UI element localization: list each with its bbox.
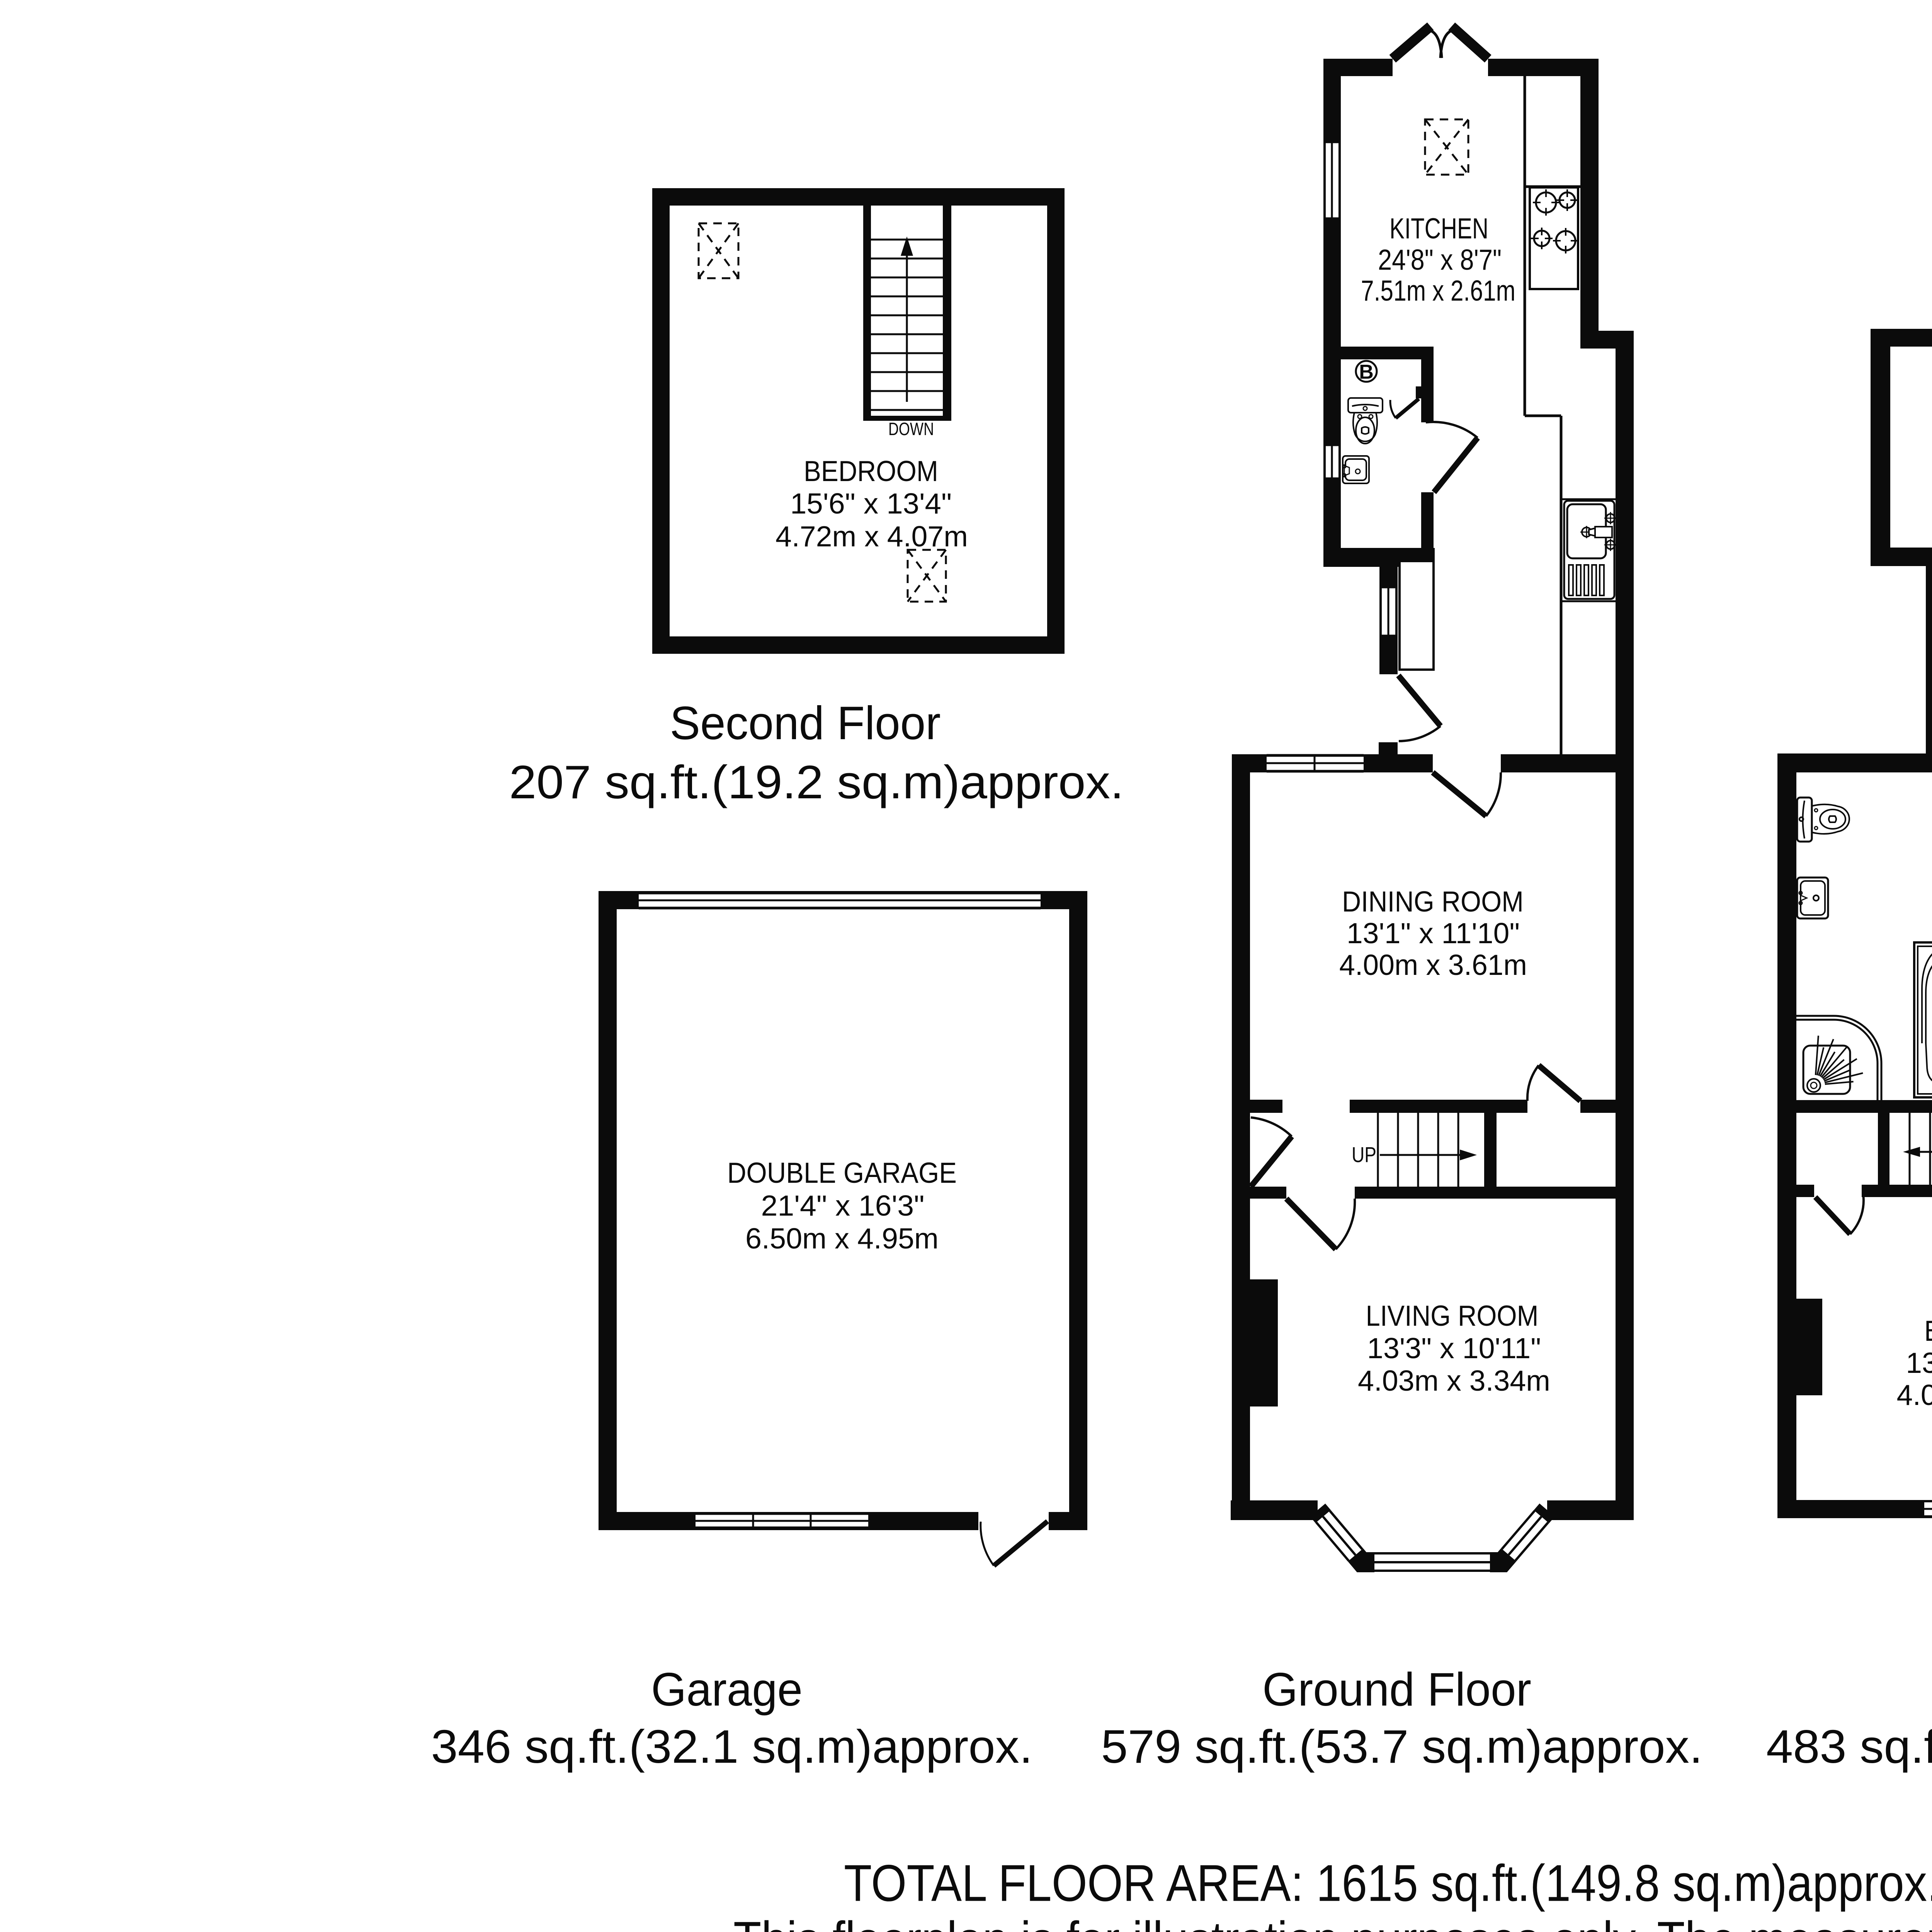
svg-text:LIVING ROOM: LIVING ROOM bbox=[1366, 1299, 1539, 1332]
svg-text:DOWN: DOWN bbox=[888, 419, 934, 439]
svg-text:13'1" x 11'10": 13'1" x 11'10" bbox=[1347, 917, 1520, 949]
svg-text:579 sq.ft.(53.7 sq.m)approx.: 579 sq.ft.(53.7 sq.m)approx. bbox=[1101, 1720, 1703, 1773]
svg-text:483 sq.ft.(44.8 sq.m)approx.: 483 sq.ft.(44.8 sq.m)approx. bbox=[1766, 1720, 1932, 1773]
svg-text:4.02m x 3.32m: 4.02m x 3.32m bbox=[1897, 1379, 1932, 1411]
svg-text:4.00m x 3.61m: 4.00m x 3.61m bbox=[1339, 949, 1527, 981]
svg-text:21'4" x 16'3": 21'4" x 16'3" bbox=[761, 1189, 925, 1222]
svg-text:24'8" x 8'7": 24'8" x 8'7" bbox=[1378, 243, 1502, 276]
svg-text:346 sq.ft.(32.1 sq.m)approx.: 346 sq.ft.(32.1 sq.m)approx. bbox=[431, 1720, 1033, 1773]
svg-text:DINING ROOM: DINING ROOM bbox=[1342, 885, 1524, 918]
svg-text:DOUBLE GARAGE: DOUBLE GARAGE bbox=[727, 1156, 957, 1189]
svg-text:Garage: Garage bbox=[651, 1663, 803, 1716]
svg-text:BEDROOM: BEDROOM bbox=[1924, 1315, 1932, 1347]
svg-text:This floorplan is for illustra: This floorplan is for illustration purpo… bbox=[733, 1912, 1932, 1932]
svg-text:15'6" x 13'4": 15'6" x 13'4" bbox=[790, 487, 952, 520]
svg-text:B: B bbox=[1359, 361, 1374, 383]
svg-text:6.50m x 4.95m: 6.50m x 4.95m bbox=[745, 1222, 939, 1255]
svg-text:TOTAL FLOOR AREA: 1615 sq.ft.(: TOTAL FLOOR AREA: 1615 sq.ft.(149.8 sq.m… bbox=[844, 1855, 1932, 1912]
svg-text:13'3" x 10'11": 13'3" x 10'11" bbox=[1367, 1332, 1541, 1364]
svg-text:4.72m x 4.07m: 4.72m x 4.07m bbox=[776, 520, 968, 553]
svg-text:UP: UP bbox=[1352, 1143, 1376, 1167]
svg-text:Second Floor: Second Floor bbox=[670, 697, 941, 749]
svg-text:BEDROOM: BEDROOM bbox=[804, 455, 938, 487]
svg-text:KITCHEN: KITCHEN bbox=[1389, 212, 1488, 245]
svg-text:207 sq.ft.(19.2 sq.m)approx.: 207 sq.ft.(19.2 sq.m)approx. bbox=[509, 756, 1124, 808]
svg-text:4.03m x 3.34m: 4.03m x 3.34m bbox=[1358, 1364, 1550, 1397]
svg-text:13'2" x 10'11": 13'2" x 10'11" bbox=[1906, 1347, 1932, 1379]
svg-text:Ground Floor: Ground Floor bbox=[1262, 1663, 1531, 1716]
svg-text:7.51m x 2.61m: 7.51m x 2.61m bbox=[1361, 274, 1515, 307]
